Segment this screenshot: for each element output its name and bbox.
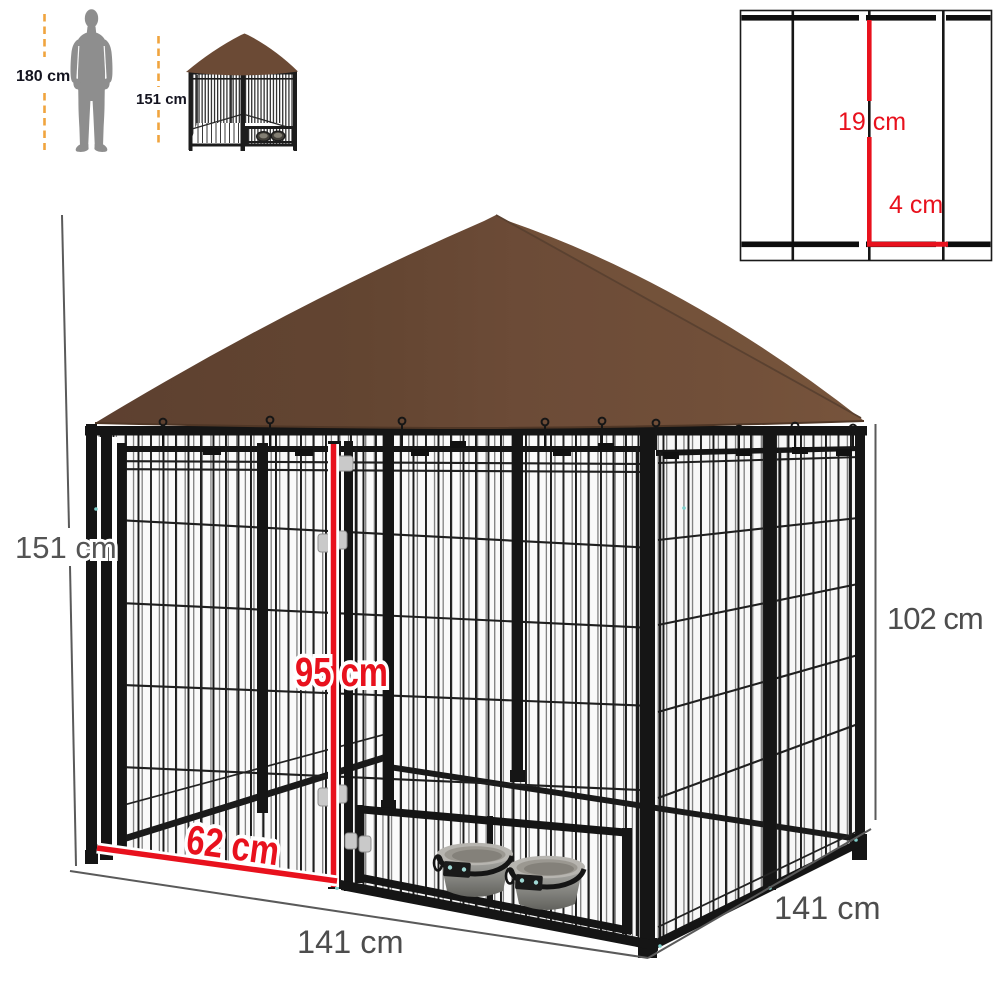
- svg-text:4 cm: 4 cm: [889, 191, 943, 219]
- svg-text:151 cm: 151 cm: [136, 91, 187, 108]
- svg-text:95 cm: 95 cm: [295, 648, 388, 694]
- svg-text:180 cm: 180 cm: [16, 68, 70, 85]
- svg-text:141 cm: 141 cm: [297, 924, 404, 960]
- svg-text:141 cm: 141 cm: [774, 890, 881, 926]
- svg-text:102 cm: 102 cm: [887, 601, 983, 636]
- svg-text:151 cm: 151 cm: [15, 530, 117, 565]
- svg-text:19 cm: 19 cm: [838, 108, 906, 136]
